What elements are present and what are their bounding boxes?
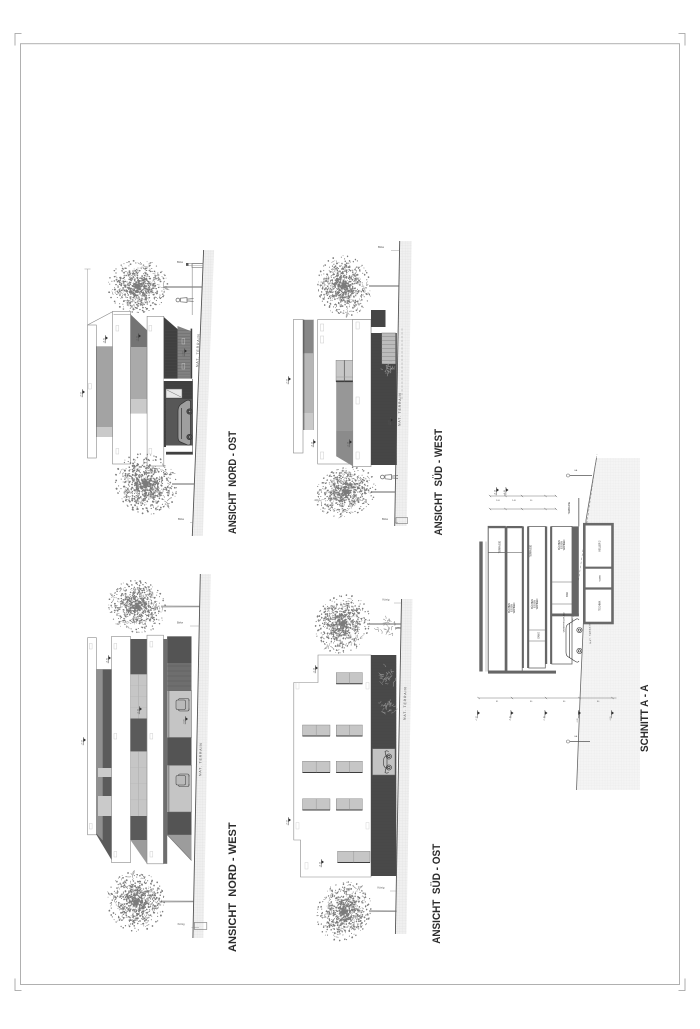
svg-text:+4.41: +4.41 <box>107 657 109 663</box>
svg-text:Birke: Birke <box>382 517 389 521</box>
svg-text:NAT. TERRAIN: NAT. TERRAIN <box>403 686 408 720</box>
svg-text:TERRASSE: TERRASSE <box>499 540 502 553</box>
svg-text:NAT. TERRAIN: NAT. TERRAIN <box>398 392 403 426</box>
svg-text:+4.14: +4.14 <box>312 441 314 447</box>
svg-text:SCHNITT A - A: SCHNITT A - A <box>639 684 651 752</box>
svg-text:-1.69: -1.69 <box>183 351 185 357</box>
svg-text:+1.24: +1.24 <box>314 667 316 673</box>
svg-text:ANSICHT NORD - WEST: ANSICHT NORD - WEST <box>227 822 239 952</box>
svg-text:GANG: GANG <box>598 575 601 582</box>
svg-text:Birke: Birke <box>177 621 184 625</box>
svg-text:+4.14: +4.14 <box>495 489 497 495</box>
svg-text:UNTERSTELLPLATZ: UNTERSTELLPLATZ <box>563 612 566 633</box>
svg-text:WOHNEN: WOHNEN <box>537 598 539 609</box>
svg-text:+1.21: +1.21 <box>138 708 140 714</box>
svg-text:+7.57: +7.57 <box>287 819 289 825</box>
svg-text:+1.21: +1.21 <box>544 715 546 721</box>
svg-text:-0.26: -0.26 <box>389 420 391 426</box>
svg-text:ANSICHT SÜD - OST: ANSICHT SÜD - OST <box>430 843 443 943</box>
svg-text:-0.26: -0.26 <box>184 719 186 725</box>
svg-text:+4.41: +4.41 <box>510 715 512 721</box>
svg-text:+4.41: +4.41 <box>504 489 506 495</box>
svg-text:Birke: Birke <box>378 245 385 249</box>
svg-text:König: König <box>383 598 390 602</box>
svg-text:WOHNEN: WOHNEN <box>514 602 516 613</box>
svg-text:KÜCHEN: KÜCHEN <box>531 599 534 609</box>
svg-text:NAT. TERRAIN: NAT. TERRAIN <box>198 742 203 776</box>
svg-text:ANSICHT NORD - OST: ANSICHT NORD - OST <box>227 431 239 534</box>
svg-text:KÜCHEN: KÜCHEN <box>558 540 561 550</box>
svg-text:+7.57: +7.57 <box>81 391 83 397</box>
svg-text:+4.14: +4.14 <box>320 861 322 867</box>
svg-text:König: König <box>378 886 385 890</box>
svg-text:+1.24: +1.24 <box>348 441 350 447</box>
svg-text:TECHNIK: TECHNIK <box>599 600 601 611</box>
svg-text:Birke: Birke <box>177 260 184 264</box>
svg-text:KELLER 2: KELLER 2 <box>599 540 601 551</box>
svg-text:WOHNEN: WOHNEN <box>564 539 566 550</box>
svg-text:+1.21: +1.21 <box>137 335 139 341</box>
svg-text:TERRASSE: TERRASSE <box>568 501 571 514</box>
svg-text:GA: GA <box>574 469 578 472</box>
svg-text:ANSICHT SÜD - WEST: ANSICHT SÜD - WEST <box>432 428 445 535</box>
svg-text:GANG: GANG <box>537 632 540 639</box>
svg-text:König: König <box>178 922 185 926</box>
svg-text:+7.57: +7.57 <box>287 378 289 384</box>
svg-text:+4.41: +4.41 <box>104 337 106 343</box>
svg-text:KÜCHEN: KÜCHEN <box>508 603 511 613</box>
svg-text:+7.57: +7.57 <box>476 715 478 721</box>
svg-text:GA: GA <box>574 735 578 738</box>
svg-text:Birke: Birke <box>178 517 185 521</box>
svg-text:BAD: BAD <box>566 592 569 597</box>
svg-text:+7.57: +7.57 <box>82 739 84 745</box>
svg-text:TERRASSE: TERRASSE <box>530 544 533 557</box>
